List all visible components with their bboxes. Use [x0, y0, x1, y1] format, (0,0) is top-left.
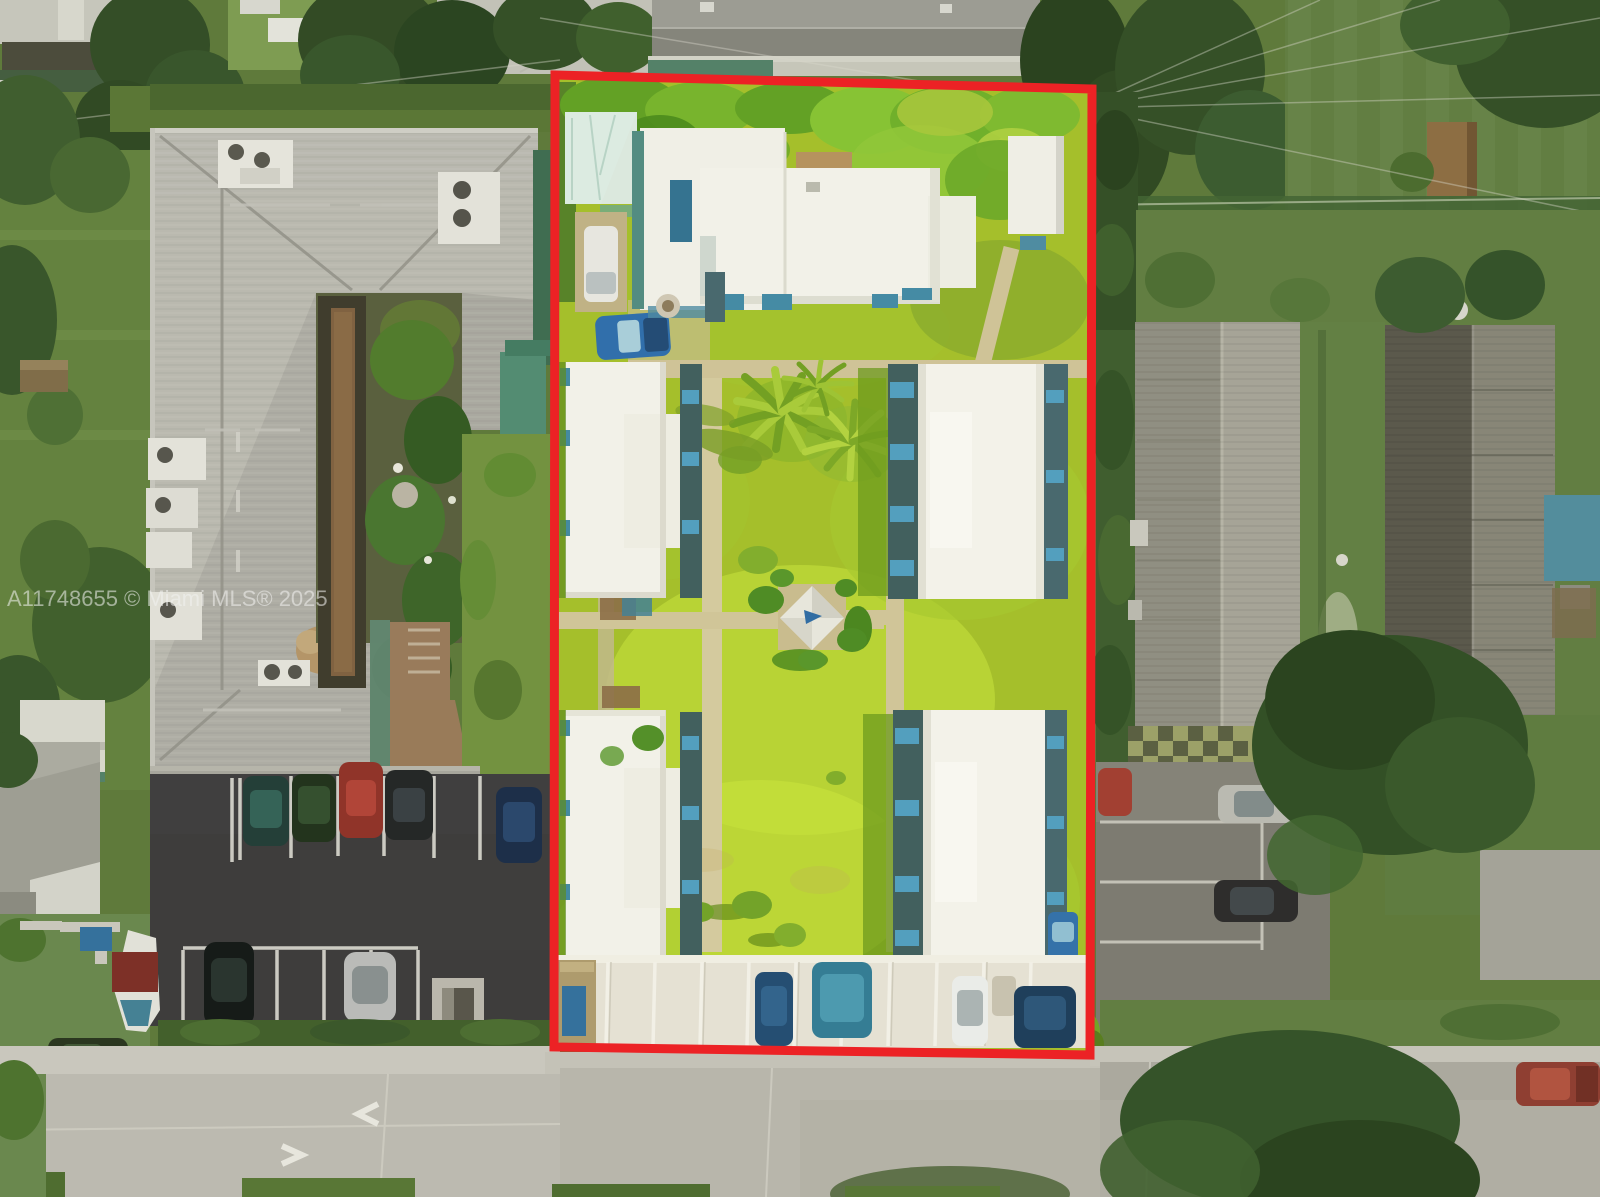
- svg-text:A11748655 © Miami MLS® 2025: A11748655 © Miami MLS® 2025: [7, 586, 328, 611]
